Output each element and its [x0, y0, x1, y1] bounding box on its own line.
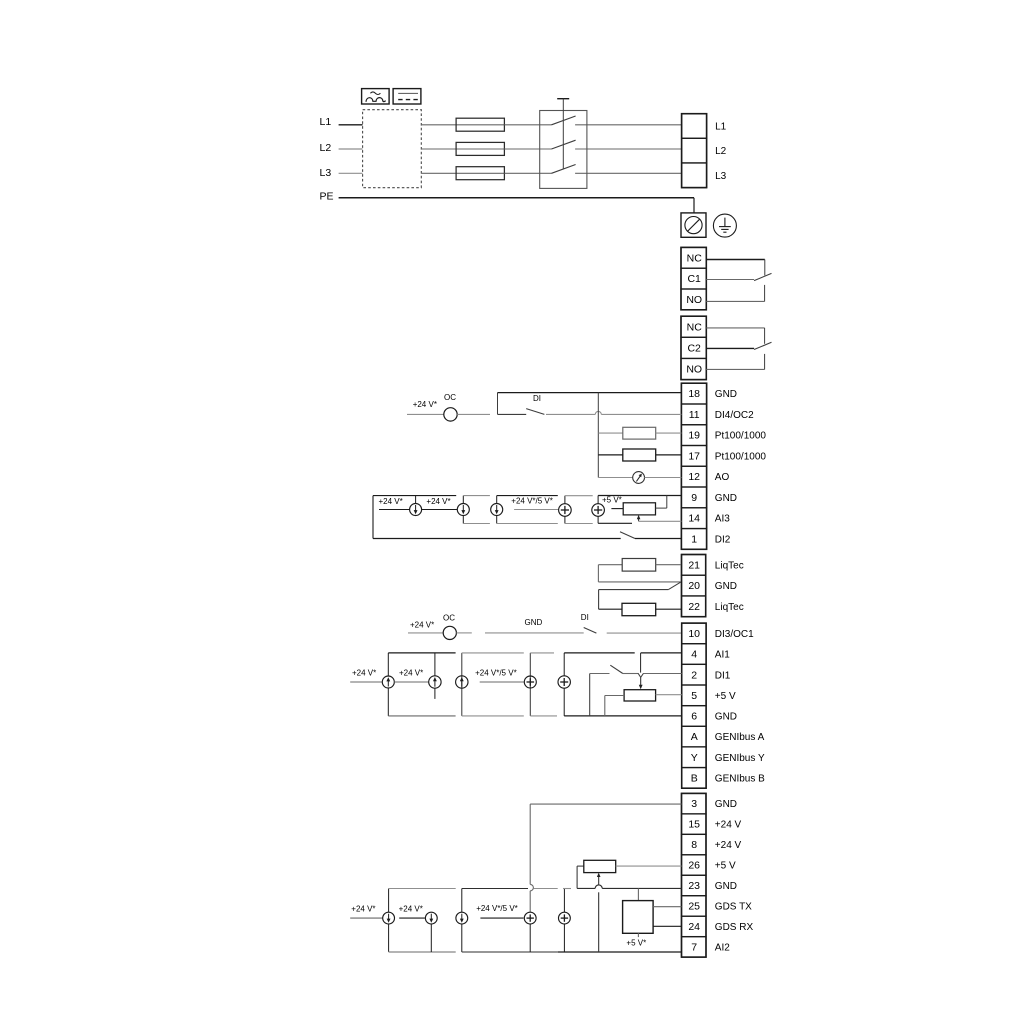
svg-text:17: 17 [688, 451, 700, 463]
svg-text:+5 V: +5 V [715, 691, 736, 702]
svg-text:10: 10 [688, 628, 700, 640]
svg-text:L3: L3 [715, 171, 727, 182]
svg-text:1: 1 [691, 534, 697, 546]
svg-text:+24 V*: +24 V* [399, 669, 423, 678]
svg-text:AO: AO [715, 472, 730, 483]
svg-text:GDS RX: GDS RX [715, 922, 754, 933]
svg-text:C2: C2 [687, 343, 701, 355]
svg-text:+24 V*: +24 V* [352, 669, 376, 678]
svg-text:+5 V*: +5 V* [602, 496, 622, 505]
svg-text:19: 19 [688, 430, 700, 442]
svg-text:DI4/OC2: DI4/OC2 [715, 410, 754, 421]
svg-text:3: 3 [691, 798, 697, 810]
svg-text:PE: PE [320, 190, 334, 202]
svg-text:DI1: DI1 [715, 670, 731, 681]
svg-text:AI1: AI1 [715, 650, 730, 661]
svg-text:Y: Y [691, 752, 698, 764]
svg-text:GND: GND [525, 618, 543, 627]
svg-text:NC: NC [687, 252, 703, 264]
svg-text:C1: C1 [687, 273, 701, 285]
svg-text:15: 15 [688, 819, 700, 831]
svg-text:5: 5 [691, 690, 697, 702]
svg-text:20: 20 [688, 580, 700, 592]
svg-text:L2: L2 [320, 142, 332, 154]
svg-text:GENIbus Y: GENIbus Y [715, 753, 765, 764]
svg-text:+24 V*: +24 V* [379, 497, 403, 506]
svg-text:DI3/OC1: DI3/OC1 [715, 629, 754, 640]
svg-text:21: 21 [688, 560, 700, 572]
svg-text:NO: NO [686, 364, 702, 376]
svg-text:LiqTec: LiqTec [715, 561, 744, 572]
svg-text:GND: GND [715, 712, 737, 723]
svg-text:OC: OC [444, 393, 456, 402]
svg-text:18: 18 [688, 388, 700, 400]
svg-text:+24 V*/5 V*: +24 V*/5 V* [511, 497, 553, 506]
svg-text:4: 4 [691, 649, 697, 661]
svg-text:GND: GND [715, 799, 737, 810]
svg-text:AI2: AI2 [715, 943, 730, 954]
svg-text:+24 V*: +24 V* [399, 905, 423, 914]
svg-text:6: 6 [691, 711, 697, 723]
svg-text:OC: OC [443, 614, 455, 623]
svg-text:B: B [691, 773, 698, 785]
svg-text:+24 V*: +24 V* [410, 621, 434, 630]
svg-text:GENIbus B: GENIbus B [715, 774, 765, 785]
svg-text:DI2: DI2 [715, 535, 731, 546]
svg-text:NO: NO [686, 294, 702, 306]
svg-text:+5 V*: +5 V* [626, 938, 646, 947]
svg-text:9: 9 [691, 492, 697, 504]
svg-text:7: 7 [691, 942, 697, 954]
svg-text:GND: GND [715, 881, 737, 892]
svg-text:GND: GND [715, 493, 737, 504]
svg-text:+24 V*/5 V*: +24 V*/5 V* [475, 669, 517, 678]
svg-text:14: 14 [688, 513, 700, 525]
svg-text:GENIbus A: GENIbus A [715, 732, 765, 743]
svg-text:25: 25 [688, 901, 700, 913]
svg-text:8: 8 [691, 839, 697, 851]
svg-text:NC: NC [687, 321, 703, 333]
svg-text:L2: L2 [715, 146, 727, 157]
svg-text:L1: L1 [715, 122, 727, 133]
svg-text:DI: DI [533, 394, 541, 403]
svg-text:GDS TX: GDS TX [715, 902, 752, 913]
svg-text:12: 12 [688, 471, 700, 483]
svg-text:AI3: AI3 [715, 514, 730, 525]
svg-text:Pt100/1000: Pt100/1000 [715, 452, 767, 463]
svg-text:+24 V: +24 V [715, 820, 742, 831]
svg-text:23: 23 [688, 880, 700, 892]
svg-text:GND: GND [715, 389, 737, 400]
svg-text:22: 22 [688, 601, 700, 613]
svg-text:+24 V*/5 V*: +24 V*/5 V* [476, 904, 518, 913]
svg-text:L1: L1 [320, 116, 332, 128]
svg-text:2: 2 [691, 669, 697, 681]
svg-text:L3: L3 [320, 167, 332, 179]
svg-text:+24 V*: +24 V* [426, 497, 450, 506]
svg-text:LiqTec: LiqTec [715, 602, 744, 613]
svg-text:Pt100/1000: Pt100/1000 [715, 431, 767, 442]
svg-text:A: A [691, 731, 698, 743]
svg-text:+24 V*: +24 V* [351, 905, 375, 914]
svg-text:26: 26 [688, 860, 700, 872]
svg-text:+5 V: +5 V [715, 861, 736, 872]
svg-text:GND: GND [715, 581, 737, 592]
svg-text:+24 V: +24 V [715, 840, 742, 851]
svg-text:+24 V*: +24 V* [413, 400, 437, 409]
svg-text:DI: DI [581, 613, 589, 622]
svg-text:24: 24 [688, 921, 700, 933]
svg-text:11: 11 [689, 409, 700, 421]
